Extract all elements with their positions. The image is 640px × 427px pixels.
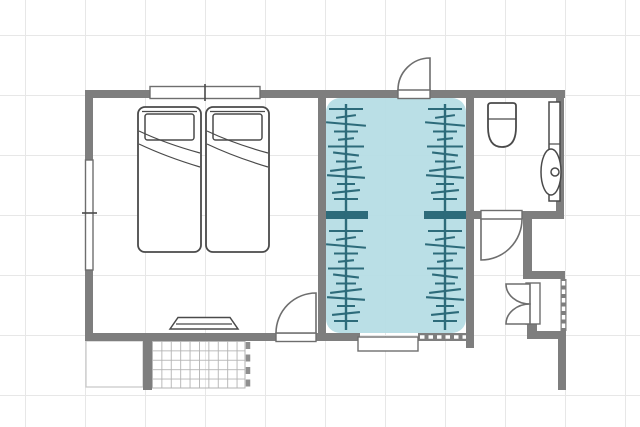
door-bedroom-threshold xyxy=(276,333,316,342)
twin-bed-2 xyxy=(206,107,269,252)
wall-bedroom-closet xyxy=(318,98,326,341)
storage-shelf-track xyxy=(561,279,567,331)
wall-storage-top xyxy=(523,271,565,279)
floor-plan-canvas xyxy=(0,0,640,427)
twin-bed-1 xyxy=(138,107,201,252)
wall-bottom-bedroom xyxy=(85,333,276,341)
window-top xyxy=(150,84,260,101)
wall-closet-hall xyxy=(466,98,474,348)
wall-bathroom-bottom-left xyxy=(466,211,481,219)
wall-right-lower xyxy=(558,339,566,390)
patio xyxy=(86,341,248,390)
shelf-outline xyxy=(170,318,238,330)
pillow xyxy=(145,114,194,140)
door-hallway-threshold xyxy=(481,211,522,220)
wall-left-lower xyxy=(85,270,93,341)
floor-plan xyxy=(0,0,640,427)
pillow xyxy=(213,114,262,140)
toilet-outline xyxy=(488,103,516,147)
faucet xyxy=(551,168,559,176)
door-closet-threshold xyxy=(398,90,430,99)
patio-tiles xyxy=(152,341,245,388)
patio-wall-stub xyxy=(143,341,152,390)
wall-hall-right xyxy=(523,219,532,275)
window-left-frame xyxy=(86,160,94,270)
wall-top-right-segment xyxy=(430,90,565,98)
toilet xyxy=(488,103,516,147)
sliding-panel xyxy=(358,337,418,351)
wall-left-upper xyxy=(85,90,93,160)
wall-storage-bottom xyxy=(527,331,566,339)
wall-shelf xyxy=(170,318,238,330)
patio-step-outline xyxy=(86,341,143,387)
storage-shelf-strip xyxy=(561,279,567,331)
